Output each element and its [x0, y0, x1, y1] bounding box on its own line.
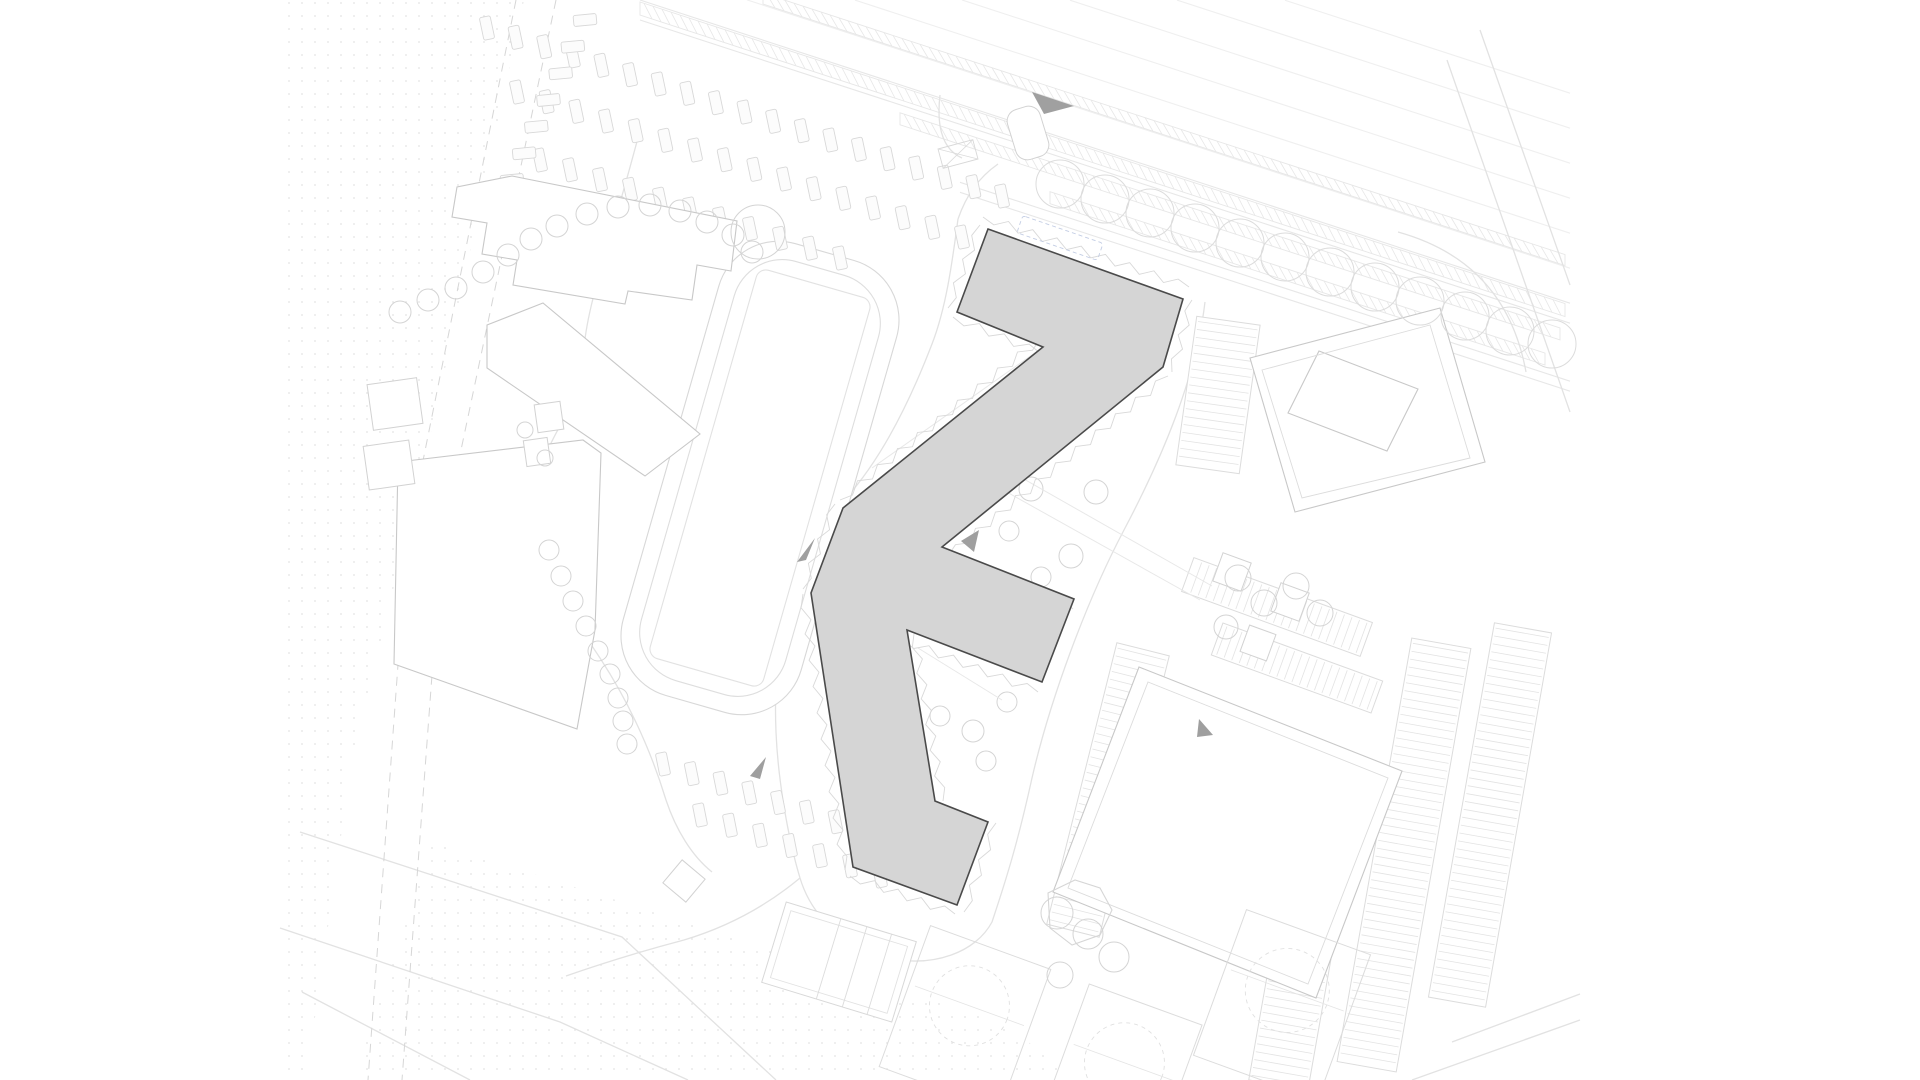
car-stall: [628, 118, 644, 143]
car-stall: [680, 81, 696, 106]
small-structure: [534, 401, 564, 432]
tree-symbol: [976, 751, 996, 771]
car-stall: [509, 80, 525, 105]
car-stall: [658, 128, 674, 153]
entrance-arrow-icon: [750, 757, 766, 779]
car-stall: [812, 843, 827, 868]
small-structure: [663, 860, 705, 902]
car-stall: [562, 157, 578, 182]
basketball-court: [1038, 984, 1202, 1080]
tree-symbol: [517, 422, 533, 438]
car-stall: [713, 771, 728, 796]
car-stall: [908, 156, 924, 181]
small-structure: [523, 437, 550, 466]
tree-symbol: [608, 688, 628, 708]
car-stall: [806, 176, 822, 201]
car-stall: [692, 803, 707, 828]
car-stall: [742, 216, 758, 241]
car-stall: [823, 128, 839, 153]
tree-symbol: [613, 711, 633, 731]
car-stall: [594, 53, 610, 78]
street-tree-symbol: [1081, 175, 1129, 223]
tree-symbol: [930, 706, 950, 726]
avenue-lane-line: [747, 0, 1570, 268]
small-structure: [363, 440, 415, 490]
car-stall: [895, 205, 911, 230]
street-tree-symbol: [1216, 219, 1264, 267]
tree-symbol: [1047, 962, 1073, 988]
avenue-lane-line: [1070, 0, 1570, 163]
avenue-lane-line: [1177, 0, 1570, 128]
small-structure: [367, 378, 423, 431]
building-outline: [452, 176, 737, 304]
car-stall: [794, 118, 810, 143]
car-stall: [752, 823, 767, 848]
car-stall: [782, 833, 797, 858]
street-tree-symbol: [1351, 263, 1399, 311]
street-tree-symbol: [1441, 292, 1489, 340]
parking-strip: [1176, 316, 1260, 473]
tree-symbol: [1099, 942, 1129, 972]
car-stall: [687, 138, 703, 163]
car-stall: [717, 147, 733, 172]
car-stall: [880, 146, 896, 171]
car-stall: [742, 781, 757, 806]
car-stall: [937, 165, 953, 190]
street-tree-symbol: [1036, 160, 1084, 208]
car-stall: [598, 109, 614, 134]
tree-symbol: [1084, 480, 1108, 504]
car-stall: [925, 215, 941, 240]
street-tree-symbol: [1486, 307, 1534, 355]
street-tree-symbol: [1171, 204, 1219, 252]
car-stall: [851, 137, 867, 162]
car-stall: [684, 761, 699, 786]
entrance-arrow-icon: [961, 530, 979, 552]
avenue-hatch-band: [763, 0, 1565, 266]
building-outline: [394, 440, 601, 729]
tree-symbol: [617, 734, 637, 754]
street-tree-symbol: [1126, 189, 1174, 237]
car-stall: [651, 72, 667, 97]
tree-symbol: [1059, 544, 1083, 568]
car-stall: [865, 196, 881, 221]
site-plan-drawing: [0, 0, 1920, 1080]
stipple-region: [352, 842, 1078, 1080]
road-line: [1480, 30, 1570, 285]
car-stall: [747, 157, 763, 182]
car-stall: [536, 34, 552, 59]
street-tree-symbol: [1261, 233, 1309, 281]
car-stall: [799, 800, 814, 825]
car-stall: [765, 109, 781, 134]
car-stall: [770, 790, 785, 815]
site-plan: [0, 0, 1920, 1080]
tree-symbol: [472, 261, 494, 283]
car-stall: [537, 93, 561, 106]
car-stall: [592, 167, 608, 192]
tree-symbol: [962, 720, 984, 742]
car-stall: [569, 99, 585, 124]
car-stall: [524, 120, 548, 133]
road-line: [1447, 60, 1570, 412]
car-stall: [722, 813, 737, 838]
car-stall: [561, 40, 585, 53]
car-stall: [776, 167, 792, 192]
avenue-lane-line: [1285, 0, 1570, 93]
car-stall: [836, 186, 852, 211]
tree-symbol: [999, 521, 1019, 541]
avenue-lane-line: [855, 0, 1570, 233]
car-stall: [573, 13, 597, 26]
car-stall: [954, 225, 970, 250]
car-stall: [622, 62, 638, 87]
street-tree-symbol: [1306, 248, 1354, 296]
road-line: [1412, 1020, 1580, 1080]
tree-symbol: [997, 692, 1017, 712]
car-stall: [512, 147, 536, 160]
car-stall: [737, 100, 753, 125]
car-stall: [549, 67, 573, 80]
landscape-path: [1008, 470, 1212, 586]
car-stall: [655, 752, 670, 777]
car-stall: [708, 90, 724, 115]
